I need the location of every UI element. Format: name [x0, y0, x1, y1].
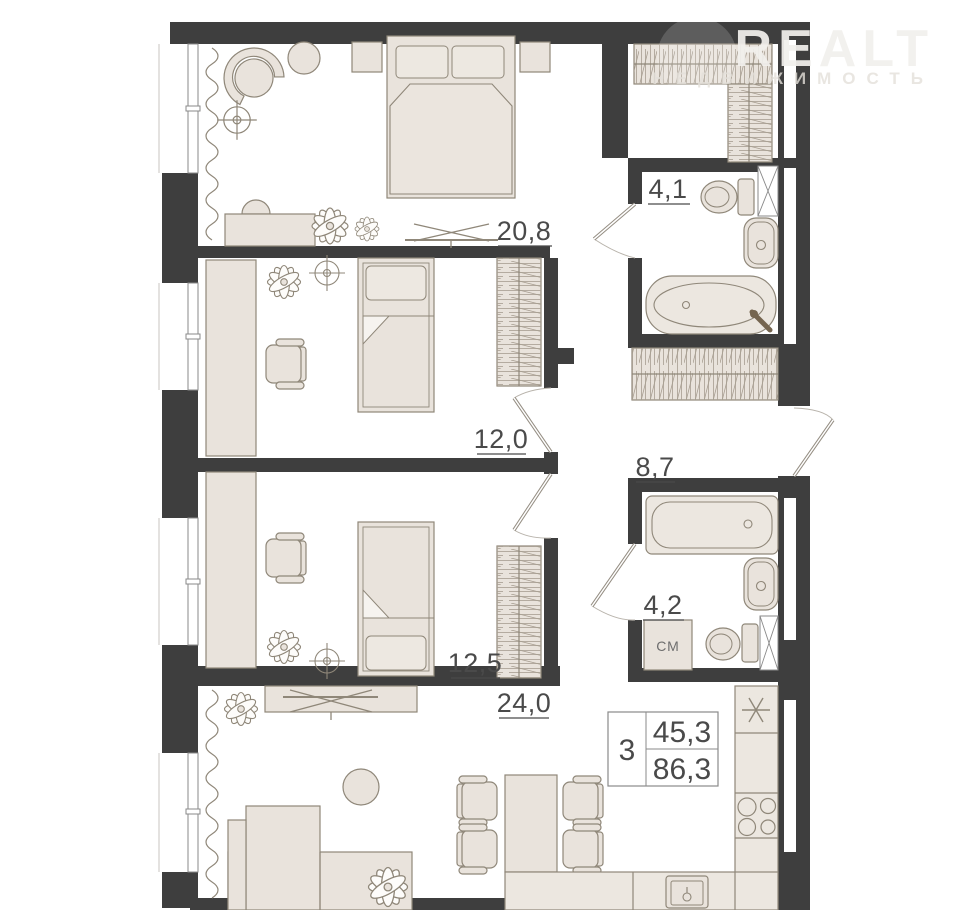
desk [206, 260, 256, 456]
wall-kids1-kids2 [196, 458, 550, 472]
pouf [288, 42, 320, 74]
nightstand [352, 42, 382, 72]
window [159, 44, 200, 173]
kids-room-1 [206, 255, 434, 456]
wall-slot [784, 700, 796, 852]
area-label-hall: 8,7 [635, 452, 674, 482]
area-label-kids1: 12,0 [474, 424, 529, 454]
wardrobe-hall [632, 348, 778, 400]
washbasin [744, 558, 778, 610]
single-bed [358, 258, 434, 412]
wall-bedroom-right [602, 44, 628, 158]
vent-shaft-icon [758, 166, 778, 216]
area-label-bath2: 4,2 [643, 590, 682, 620]
plant-icon [267, 630, 301, 664]
washbasin [744, 218, 778, 268]
total-area-value: 86,3 [653, 753, 711, 786]
bathroom-guest: СМ [644, 496, 778, 670]
vent-shaft-icon [760, 616, 778, 670]
plant-icon [311, 207, 348, 244]
desk [225, 200, 315, 246]
wall-pier [162, 872, 198, 908]
door-bath1 [594, 204, 635, 258]
wall-kids-right-a [544, 258, 558, 388]
wall-pier [162, 645, 198, 753]
wall-pier [162, 390, 198, 518]
area-label-living: 24,0 [497, 688, 552, 718]
wardrobe-kids1 [497, 258, 541, 386]
door-bath2 [592, 544, 635, 620]
washing-machine: СМ [644, 620, 692, 670]
wall-bedroom-kids1 [196, 246, 550, 258]
wall-bath2-left-a [628, 478, 642, 544]
wall-bath1-left-a [628, 158, 642, 204]
desk-chair [266, 339, 306, 389]
kitchen-sink [666, 876, 708, 908]
kids-room-2 [206, 472, 434, 679]
area-label-bedroom: 20,8 [497, 216, 552, 246]
floor-plan: СМ [0, 0, 960, 910]
pillow [452, 46, 504, 78]
wall-bath1-bottom [628, 334, 778, 348]
armchair [213, 37, 290, 110]
ceiling-light-icon [309, 255, 345, 291]
window [159, 753, 200, 872]
plant-icon [355, 217, 380, 242]
door-kids2 [514, 474, 551, 538]
wardrobe-kids2 [497, 546, 541, 678]
pillow [366, 636, 426, 670]
rooms-count: 3 [619, 734, 636, 767]
kitchen-counter-bottom [505, 872, 778, 910]
window [159, 283, 200, 390]
wall-slot [784, 168, 796, 344]
desk [206, 472, 256, 668]
pillow [396, 46, 448, 78]
desk-chair [242, 200, 270, 214]
dining-chair [457, 776, 497, 826]
pillow [366, 266, 426, 300]
wardrobe-top-vertical [728, 84, 772, 162]
door-entry [794, 408, 833, 476]
area-label-kids2: 12,5 [448, 648, 503, 678]
curtain-icon [206, 690, 218, 898]
toilet [706, 624, 758, 662]
plant-icon [267, 265, 301, 299]
wall-pier [162, 173, 198, 283]
info-box: 3 45,3 86,3 [608, 712, 718, 786]
wardrobes [497, 44, 778, 678]
bathtub [646, 496, 778, 554]
watermark-tagline: НЕДВИЖИМОСТЬ [652, 69, 934, 88]
area-label-bath1: 4,1 [648, 174, 687, 204]
toilet [701, 179, 754, 215]
dining-chair [563, 776, 603, 826]
blanket [390, 84, 512, 194]
window [159, 518, 200, 645]
floor-plan-canvas: СМ [0, 0, 960, 910]
desk-chair [266, 533, 306, 583]
ceiling-light-icon [217, 100, 257, 140]
wall-slot [784, 498, 796, 640]
dining-set [457, 775, 603, 874]
nightstand [520, 42, 550, 72]
washing-machine-label: СМ [656, 638, 680, 654]
tv-stand [265, 686, 417, 720]
wall-kids-right-c [544, 538, 558, 682]
dining-chair [563, 824, 603, 874]
tv-icon [405, 224, 498, 248]
plant-icon [224, 692, 258, 726]
watermark: REALT НЕДВИЖИМОСТЬ [652, 17, 934, 97]
dining-chair [457, 824, 497, 874]
bathtub [646, 276, 776, 334]
double-bed [387, 36, 515, 198]
living-area-value: 45,3 [653, 716, 711, 749]
single-bed [358, 522, 434, 676]
curtain-icon [206, 48, 218, 240]
pouf [343, 769, 379, 805]
dining-table [505, 775, 557, 872]
